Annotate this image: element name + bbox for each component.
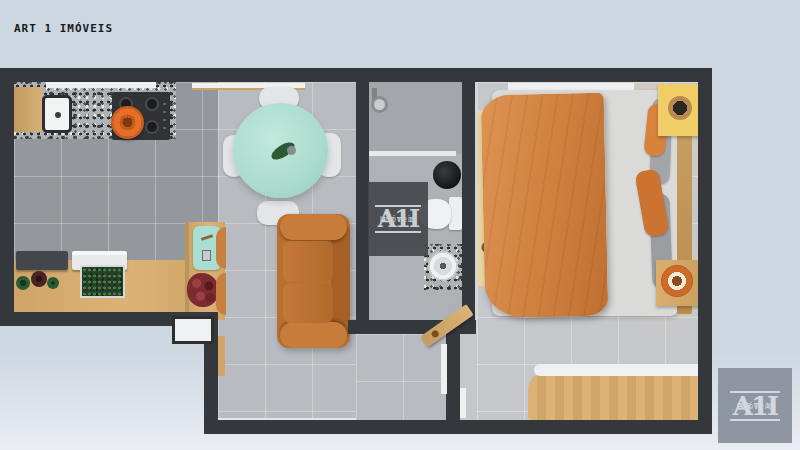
bathroom-stool — [433, 161, 461, 189]
tray-item — [201, 234, 213, 241]
top-left-brand-text: ART 1 IMÓVEIS — [14, 22, 113, 35]
cutting-board — [14, 87, 42, 132]
wall-right — [698, 68, 712, 434]
dark-vase — [31, 271, 47, 287]
bedroom-dresser — [528, 372, 698, 420]
wall-bedroom-divider — [446, 334, 460, 420]
kitchen-backsplash — [46, 82, 156, 88]
kitchen-sink — [42, 95, 72, 133]
bathroom-brand-watermark: ART 1 A1I Imóveis — [368, 182, 428, 256]
herb-planter — [80, 265, 125, 298]
burner — [145, 97, 159, 111]
bedroom-dresser-top — [534, 364, 698, 376]
shower-floor — [369, 82, 462, 154]
kitchen-bottom-window — [172, 316, 214, 344]
green-bottle — [16, 276, 30, 290]
sofa-armrest — [280, 214, 347, 240]
wall-top — [0, 68, 712, 82]
sofa-cushion — [283, 283, 333, 323]
floorplan-scene: ART 1 IMÓVEIS — [0, 0, 800, 450]
wall-bathroom-right — [462, 82, 475, 334]
corner-brand-logo: ART 1 A1I Imóveis — [718, 368, 792, 443]
round-sink-basin — [428, 251, 458, 281]
brand-line2: Imóveis — [380, 214, 416, 224]
sofa-cushion — [283, 241, 333, 282]
orange-blanket — [481, 93, 609, 319]
shower-glass-partition — [369, 151, 456, 156]
desk-stool — [216, 227, 226, 269]
sink-drain — [55, 112, 61, 118]
sofa-armrest — [280, 322, 347, 348]
table-centerpiece-pot — [287, 146, 296, 155]
nightstand-lamp — [661, 265, 693, 297]
cooktop-knobs — [163, 100, 166, 132]
door-leaf — [441, 344, 447, 394]
living-room-door — [218, 336, 225, 376]
door-leaf — [460, 388, 466, 418]
wall-left — [0, 68, 14, 326]
orange-pot — [111, 106, 144, 139]
wall-bottom — [204, 420, 712, 434]
burner — [145, 120, 159, 134]
door-knob — [430, 329, 440, 339]
living-room-floor-extension — [356, 334, 446, 420]
desk-stool — [216, 273, 226, 315]
nightstand-lamp — [668, 96, 692, 120]
tray-item — [202, 250, 211, 261]
rose-bouquet — [187, 273, 219, 307]
shower-head — [371, 96, 388, 113]
green-bottle — [47, 277, 59, 289]
microwave — [16, 251, 68, 270]
brand-line2: Imóveis — [737, 401, 773, 411]
